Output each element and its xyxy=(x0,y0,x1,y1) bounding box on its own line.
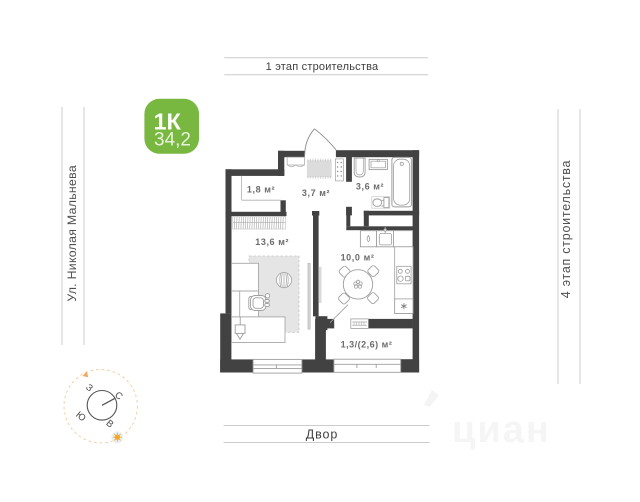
svg-text:34,2: 34,2 xyxy=(154,130,191,151)
svg-text:Двор: Двор xyxy=(306,428,338,442)
svg-text:Ю: Ю xyxy=(73,410,88,425)
svg-text:1 этап строительства: 1 этап строительства xyxy=(266,61,379,73)
svg-text:1,3/(2,6) м²: 1,3/(2,6) м² xyxy=(341,340,393,350)
svg-text:1,8 м²: 1,8 м² xyxy=(247,184,275,194)
svg-text:3,6 м²: 3,6 м² xyxy=(356,182,384,192)
svg-text:13,6 м²: 13,6 м² xyxy=(255,237,289,247)
svg-text:Ул. Николая Мальнева: Ул. Николая Мальнева xyxy=(65,165,79,302)
svg-text:10,0 м²: 10,0 м² xyxy=(341,252,375,262)
svg-text:З: З xyxy=(83,382,95,394)
svg-text:3,7 м²: 3,7 м² xyxy=(302,188,330,198)
svg-text:4 этап строительства: 4 этап строительства xyxy=(559,160,573,299)
svg-text:циан: циан xyxy=(452,409,551,451)
